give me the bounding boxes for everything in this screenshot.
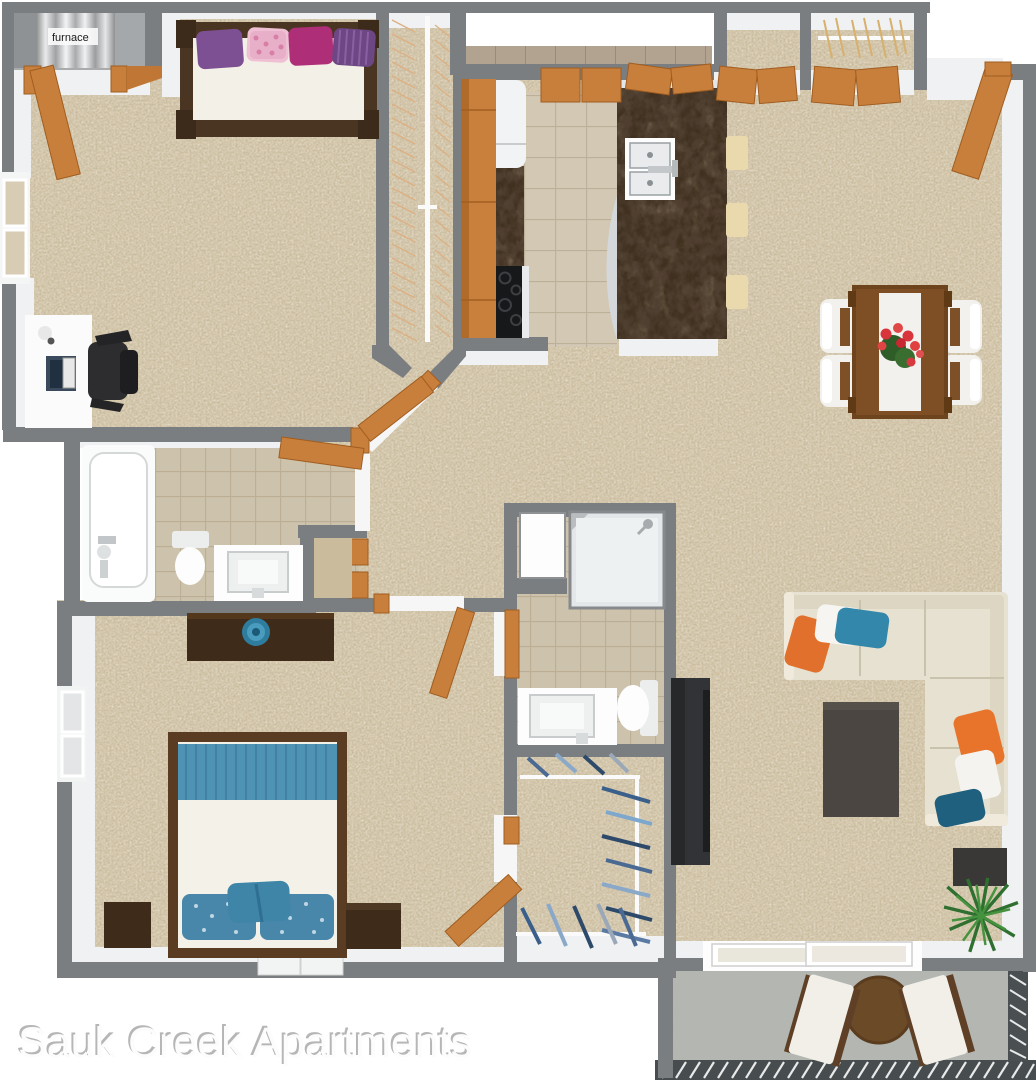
svg-text:Sauk Creek Apartments: Sauk Creek Apartments bbox=[18, 1019, 472, 1067]
svg-text:furnace: furnace bbox=[52, 32, 89, 44]
